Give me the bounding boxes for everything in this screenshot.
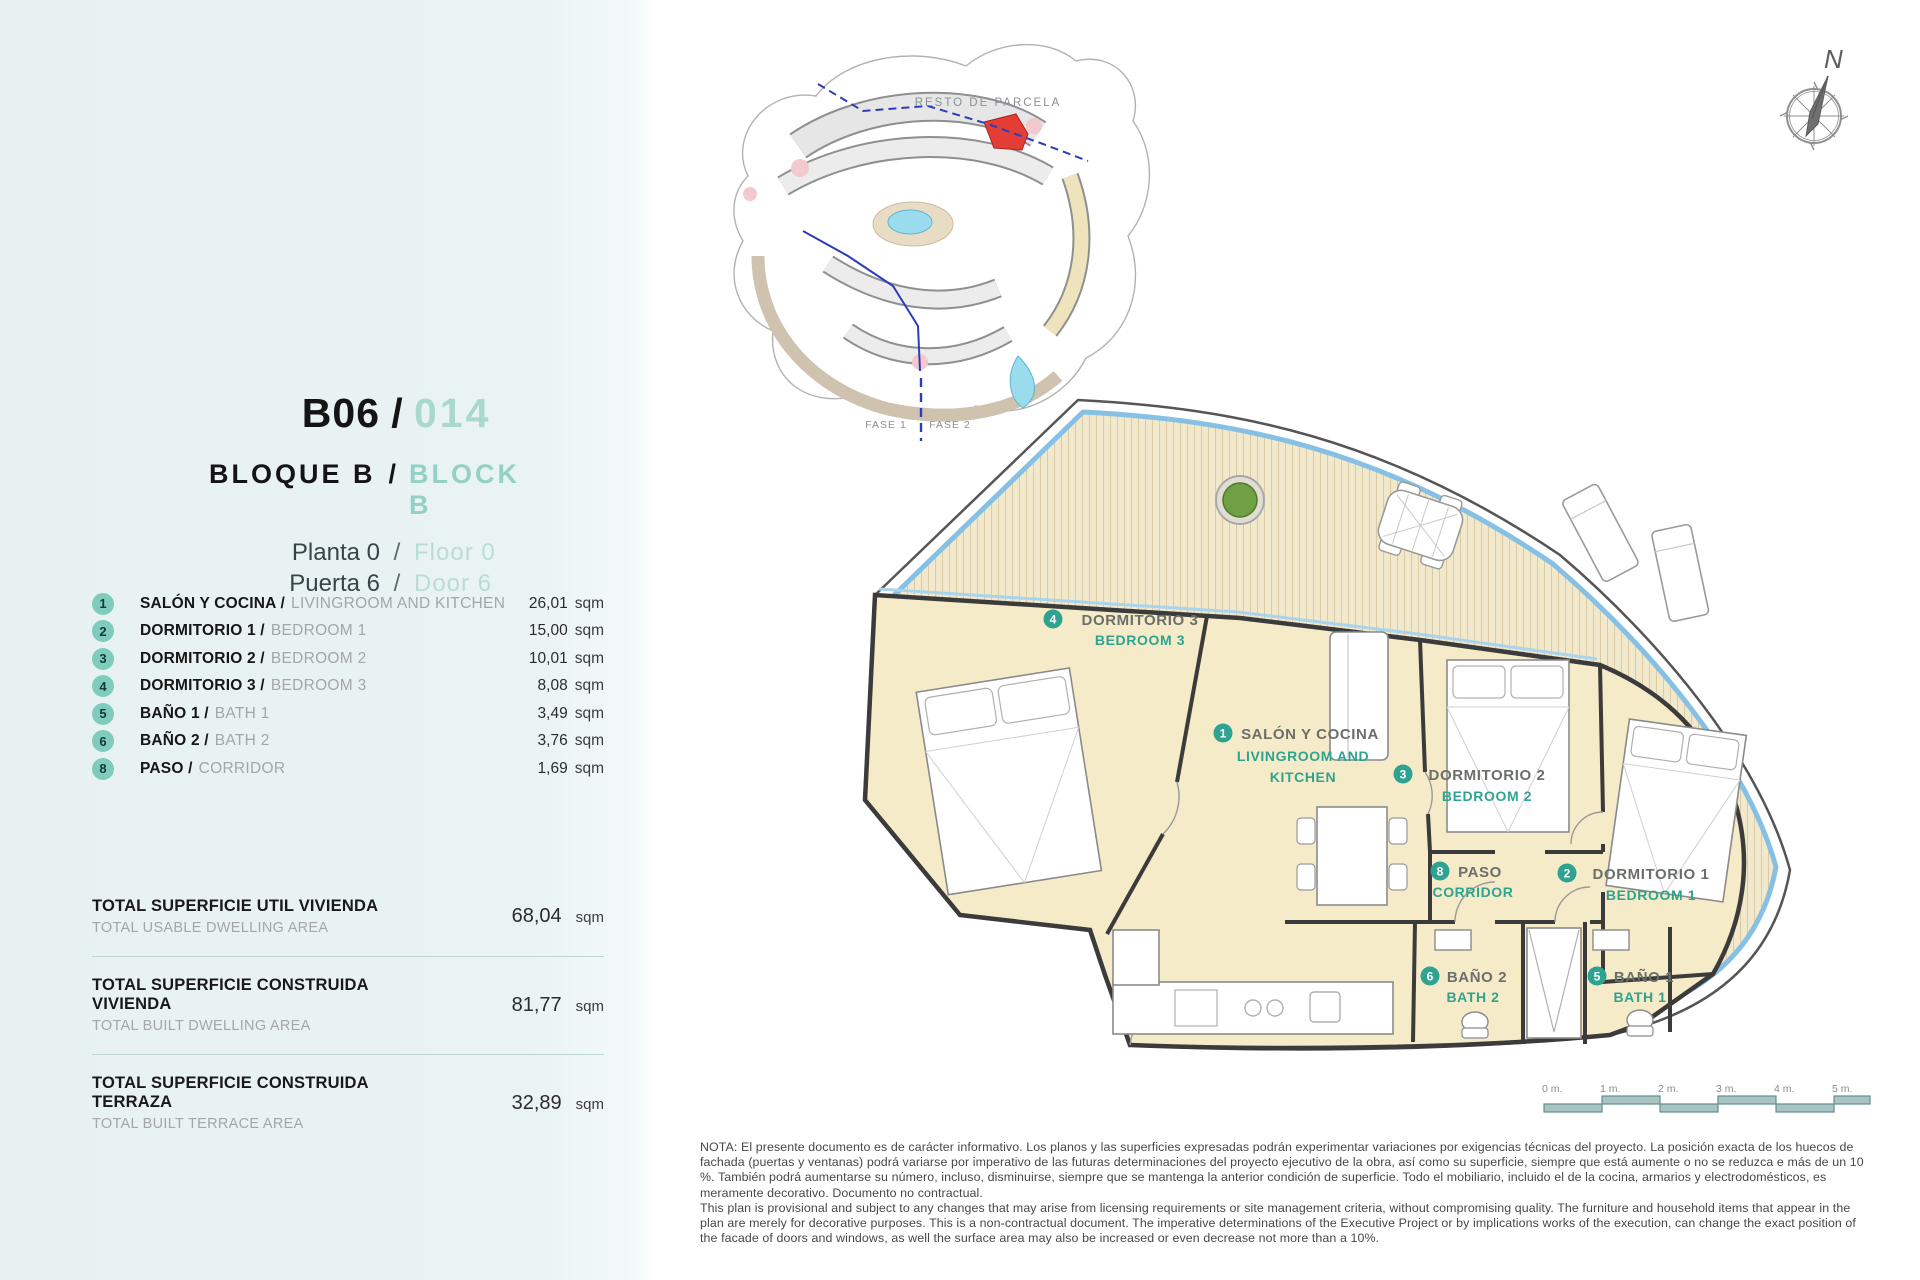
room-number-badge: 2 [92,620,114,642]
total-built-dwelling-area: TOTAL SUPERFICIE CONSTRUIDA VIVIENDA TOT… [92,965,604,1046]
resto-de-parcela-label: RESTO DE PARCELA [915,97,1062,109]
label-en: KITCHEN [1270,769,1336,785]
total-value: 32,89 [512,1092,562,1115]
scale-tick: 3 m. [1716,1083,1736,1095]
area-unit: sqm [575,760,604,777]
room-row-bath1: 5 BAÑO 1 / BATH 1 3,49sqm [92,700,604,728]
area-unit: sqm [575,595,604,612]
scale-tick: 2 m. [1658,1083,1678,1095]
total-built-terrace-area: TOTAL SUPERFICIE CONSTRUIDA TERRAZA TOTA… [92,1063,604,1144]
room-area-value: 15,00sqm [529,622,604,640]
area-unit: sqm [575,677,604,694]
scale-bar: 0 m. 1 m. 2 m. 3 m. 4 m. 5 m. [1532,1078,1882,1126]
label-number: 3 [1400,768,1407,782]
area-number: 1,69 [538,760,568,777]
area-unit: sqm [575,705,604,722]
total-label-en: TOTAL USABLE DWELLING AREA [92,920,452,936]
label-en: BATH 1 [1613,989,1666,1005]
total-label-es: TOTAL SUPERFICIE CONSTRUIDA TERRAZA [92,1074,452,1112]
room-number-badge: 3 [92,648,114,670]
total-label-es: TOTAL SUPERFICIE CONSTRUIDA VIVIENDA [92,976,452,1014]
room-name-en: BEDROOM 1 [271,622,367,640]
scale-tick: 4 m. [1774,1083,1794,1095]
room-number-badge: 5 [92,703,114,725]
room-area-value: 26,01sqm [529,595,604,613]
room-row-bedroom1: 2 DORMITORIO 1 / BEDROOM 1 15,00sqm [92,618,604,646]
room-row-bedroom3: 4 DORMITORIO 3 / BEDROOM 3 8,08sqm [92,673,604,701]
label-es: DORMITORIO 2 [1429,767,1546,784]
total-usable-area: TOTAL SUPERFICIE UTIL VIVIENDA TOTAL USA… [92,886,604,948]
room-number-badge: 8 [92,758,114,780]
disclaimer-en: This plan is provisional and subject to … [700,1201,1868,1247]
label-es: DORMITORIO 3 [1082,612,1199,629]
room-number-badge: 1 [92,593,114,615]
scale-tick: 1 m. [1600,1083,1620,1095]
total-label-en: TOTAL BUILT DWELLING AREA [92,1018,452,1034]
compass-rose-icon [1780,76,1848,150]
bed-icon-bedroom2 [1447,660,1569,832]
label-en: LIVINGROOM AND [1237,748,1369,764]
area-unit: sqm [576,1096,604,1113]
block-es: BLOQUE B [80,459,376,490]
room-number-badge: 4 [92,675,114,697]
area-unit: sqm [576,909,604,926]
room-name-en: CORRIDOR [199,760,286,778]
total-value: 68,04 [512,905,562,928]
floor-es: Planta 0 [80,539,380,567]
room-name-en: BEDROOM 2 [271,650,367,668]
label-number: 4 [1050,613,1057,627]
separator: / [376,459,409,490]
label-es: SALÓN Y COCINA [1241,725,1379,743]
site-pool [888,210,932,234]
room-name-es: DORMITORIO 2 / [140,650,265,668]
label-en: BEDROOM 3 [1095,632,1185,648]
apartment-floor-plan: 4 DORMITORIO 3 BEDROOM 3 1 SALÓN Y COCIN… [855,382,1815,1082]
area-unit: sqm [575,622,604,639]
label-number: 8 [1437,865,1444,879]
room-name-en: BATH 2 [215,732,270,750]
floor-plan-sheet: { "sep": "/", "unit": { "code": "B06", "… [0,0,1920,1280]
room-name-es: BAÑO 2 / [140,732,209,750]
room-name-es: SALÓN Y COCINA / [140,595,285,613]
label-es: DORMITORIO 1 [1593,866,1710,883]
room-area-value: 10,01sqm [529,650,604,668]
terrace-planter-icon [1216,476,1264,524]
total-value: 81,77 [512,994,562,1017]
room-name-es: PASO / [140,760,193,778]
site-accent [743,187,757,201]
room-area-value: 3,49sqm [538,705,604,723]
room-area-list: 1 SALÓN Y COCINA / LIVINGROOM AND KITCHE… [92,590,604,783]
room-name-en: LIVINGROOM AND KITCHEN [291,595,505,613]
area-number: 10,01 [529,650,568,667]
room-name-es: DORMITORIO 3 / [140,677,265,695]
label-es: BAÑO 2 [1447,968,1507,986]
divider [92,956,604,957]
area-number: 15,00 [529,622,568,639]
area-number: 8,08 [538,677,568,694]
terrace-lounger-icon [1651,524,1709,622]
scale-bar-steps [1544,1096,1870,1112]
area-number: 3,49 [538,705,568,722]
room-number-badge: 6 [92,730,114,752]
label-number: 6 [1427,970,1434,984]
floor-en: Floor 0 [414,539,520,567]
info-sidebar: B06 / 014 BLOQUE B / BLOCK B Planta 0 / … [0,0,655,1280]
area-unit: sqm [575,650,604,667]
label-number: 5 [1594,970,1601,984]
room-row-bath2: 6 BAÑO 2 / BATH 2 3,76sqm [92,728,604,756]
room-row-bedroom2: 3 DORMITORIO 2 / BEDROOM 2 10,01sqm [92,645,604,673]
total-label-es: TOTAL SUPERFICIE UTIL VIVIENDA [92,897,452,916]
room-name-en: BATH 1 [215,705,270,723]
scale-tick: 0 m. [1542,1083,1562,1095]
label-es: PASO [1458,864,1502,881]
room-row-corridor: 8 PASO / CORRIDOR 1,69sqm [92,755,604,783]
label-en: BEDROOM 2 [1442,788,1532,804]
room-area-value: 8,08sqm [538,677,604,695]
label-es: BAÑO 1 [1614,968,1674,986]
divider [92,1054,604,1055]
block-line: BLOQUE B / BLOCK B [80,459,520,521]
area-unit: sqm [576,998,604,1015]
room-name-es: DORMITORIO 1 / [140,622,265,640]
disclaimer-es: NOTA: El presente documento es de caráct… [700,1140,1868,1201]
north-label: N [1824,44,1843,74]
separator: / [380,390,414,437]
label-en: CORRIDOR [1432,884,1513,900]
shower-icon [1527,928,1581,1038]
label-en: BATH 2 [1446,989,1499,1005]
unit-code: B06 [80,390,380,437]
area-number: 26,01 [529,595,568,612]
label-en: BEDROOM 1 [1606,887,1696,903]
unit-header: B06 / 014 BLOQUE B / BLOCK B Planta 0 / … [80,390,520,601]
site-accent [1026,118,1042,134]
block-en: BLOCK B [409,459,520,521]
bed-icon-bedroom3 [916,668,1101,895]
unit-code-line: B06 / 014 [80,390,520,437]
room-area-value: 3,76sqm [538,732,604,750]
room-area-value: 1,69sqm [538,760,604,778]
north-compass: N [1762,38,1872,163]
separator: / [380,539,414,567]
label-number: 1 [1220,727,1227,741]
room-name-es: BAÑO 1 / [140,705,209,723]
area-unit: sqm [575,732,604,749]
totals-section: TOTAL SUPERFICIE UTIL VIVIENDA TOTAL USA… [92,886,604,1144]
legal-disclaimer: NOTA: El presente documento es de caráct… [700,1140,1868,1246]
total-label-en: TOTAL BUILT TERRACE AREA [92,1116,452,1132]
area-number: 3,76 [538,732,568,749]
label-number: 2 [1564,867,1571,881]
floor-line: Planta 0 / Floor 0 [80,539,520,570]
room-name-en: BEDROOM 3 [271,677,367,695]
unit-number: 014 [414,390,520,437]
scale-tick: 5 m. [1832,1083,1852,1095]
site-accent [791,159,809,177]
room-row-living: 1 SALÓN Y COCINA / LIVINGROOM AND KITCHE… [92,590,604,618]
